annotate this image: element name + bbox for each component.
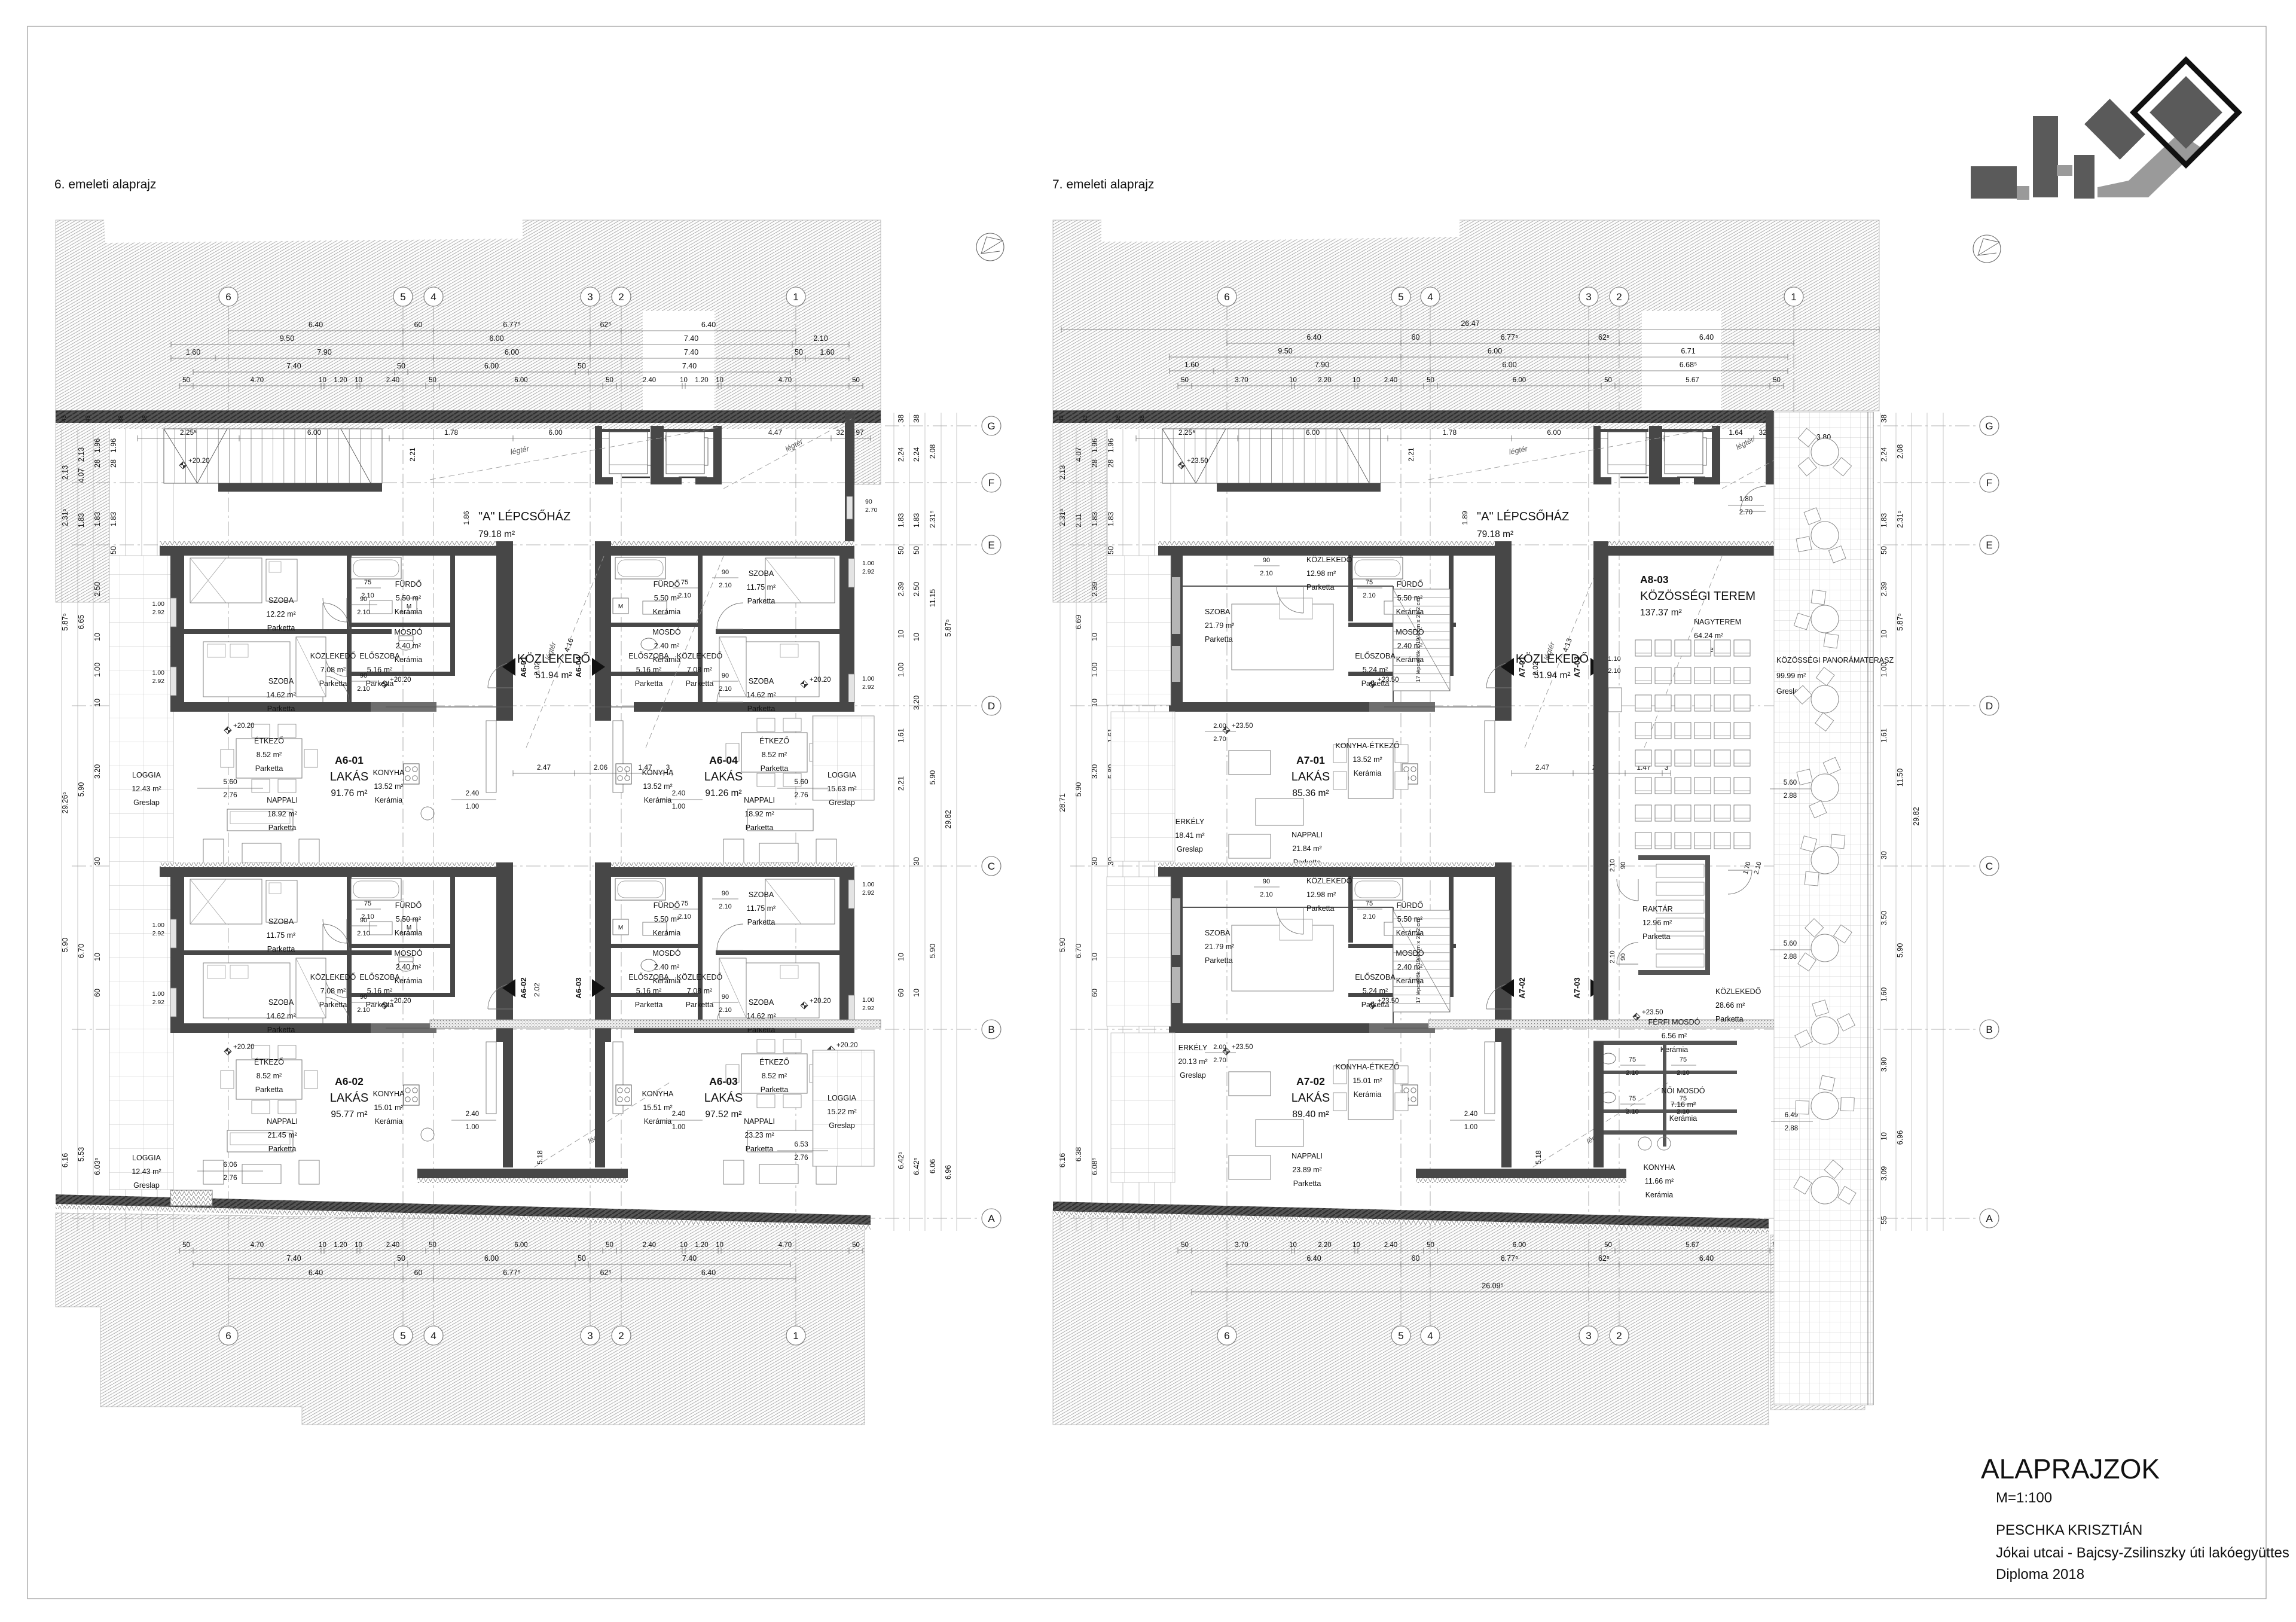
- svg-text:6.69: 6.69: [1074, 615, 1083, 629]
- svg-text:1.00: 1.00: [466, 803, 479, 810]
- svg-text:5.50 m²: 5.50 m²: [396, 915, 421, 923]
- svg-text:2.40: 2.40: [1384, 377, 1397, 384]
- svg-text:MOSDÓ: MOSDÓ: [1396, 627, 1424, 636]
- svg-text:50: 50: [1427, 377, 1434, 384]
- svg-text:6. emeleti alaprajz: 6. emeleti alaprajz: [54, 178, 156, 191]
- svg-text:+23.50: +23.50: [1232, 722, 1253, 730]
- svg-text:4.70: 4.70: [251, 1242, 264, 1249]
- svg-text:5.60: 5.60: [794, 778, 808, 786]
- svg-text:2.10: 2.10: [678, 592, 691, 599]
- svg-text:Diploma 2018: Diploma 2018: [1996, 1566, 2084, 1583]
- svg-text:1.61: 1.61: [897, 728, 905, 743]
- svg-text:2.40 m²: 2.40 m²: [654, 963, 679, 971]
- svg-text:43: 43: [1058, 415, 1065, 422]
- svg-text:28: 28: [1107, 459, 1115, 468]
- svg-text:11.50: 11.50: [1896, 769, 1904, 786]
- svg-text:6.77⁵: 6.77⁵: [1501, 1254, 1519, 1263]
- svg-text:1.00: 1.00: [862, 881, 875, 888]
- svg-text:90: 90: [1620, 862, 1627, 869]
- svg-text:50: 50: [1604, 377, 1612, 384]
- svg-text:KONYHA: KONYHA: [642, 1090, 674, 1098]
- svg-text:1.96: 1.96: [93, 438, 102, 453]
- svg-text:3: 3: [587, 291, 593, 303]
- svg-text:5.50 m²: 5.50 m²: [654, 594, 679, 602]
- svg-text:7.16 m²: 7.16 m²: [1671, 1100, 1696, 1109]
- svg-text:2.92: 2.92: [862, 1005, 875, 1012]
- svg-text:1.00: 1.00: [672, 803, 685, 810]
- svg-text:LOGGIA: LOGGIA: [132, 771, 161, 779]
- svg-text:5.24 m²: 5.24 m²: [1363, 666, 1388, 674]
- svg-text:7.40: 7.40: [684, 334, 698, 343]
- svg-text:Parketta: Parketta: [1205, 635, 1233, 644]
- svg-text:60: 60: [1412, 1254, 1420, 1263]
- svg-text:+23.50: +23.50: [1232, 1044, 1253, 1051]
- svg-text:2.50: 2.50: [912, 582, 921, 596]
- svg-text:LAKÁS: LAKÁS: [704, 1091, 743, 1105]
- svg-text:1.10: 1.10: [1608, 655, 1620, 663]
- svg-text:6.70: 6.70: [77, 944, 86, 958]
- svg-text:11.15: 11.15: [929, 589, 937, 607]
- svg-text:Kerámia: Kerámia: [375, 1117, 403, 1126]
- svg-text:15.01 m²: 15.01 m²: [1352, 1077, 1382, 1085]
- svg-text:50: 50: [912, 546, 921, 554]
- svg-text:75: 75: [1366, 579, 1373, 586]
- svg-text:7.40: 7.40: [684, 348, 698, 356]
- svg-text:2.10: 2.10: [678, 913, 691, 920]
- svg-text:ÉTKEZŐ: ÉTKEZŐ: [254, 1057, 284, 1066]
- svg-text:Kerámia: Kerámia: [1645, 1191, 1674, 1199]
- svg-text:FÜRDŐ: FÜRDŐ: [654, 580, 680, 589]
- svg-text:Kerámia: Kerámia: [1669, 1114, 1697, 1123]
- svg-text:A7-02: A7-02: [1518, 977, 1526, 998]
- svg-text:+23.50: +23.50: [1378, 998, 1399, 1005]
- svg-text:15.63 m²: 15.63 m²: [827, 785, 856, 793]
- svg-text:2.25⁵: 2.25⁵: [180, 428, 197, 437]
- svg-text:LOGGIA: LOGGIA: [132, 1154, 161, 1162]
- svg-text:Parketta: Parketta: [761, 764, 789, 773]
- svg-text:SZOBA: SZOBA: [268, 677, 294, 685]
- svg-text:Kerámia: Kerámia: [1396, 608, 1424, 616]
- svg-text:2.88: 2.88: [1785, 1125, 1798, 1132]
- svg-text:91.26 m²: 91.26 m²: [705, 788, 741, 798]
- svg-text:2.06: 2.06: [594, 763, 608, 772]
- svg-text:95.77 m²: 95.77 m²: [331, 1109, 367, 1120]
- svg-text:ÉTKEZŐ: ÉTKEZŐ: [759, 736, 789, 745]
- svg-text:90: 90: [722, 890, 729, 897]
- svg-text:8.52 m²: 8.52 m²: [762, 751, 787, 759]
- svg-text:2: 2: [1616, 1330, 1622, 1341]
- svg-text:4: 4: [430, 1330, 436, 1341]
- svg-text:2.10: 2.10: [719, 903, 731, 910]
- svg-text:2.39: 2.39: [897, 582, 905, 596]
- svg-text:+20.20: +20.20: [233, 722, 255, 730]
- svg-text:7.08 m²: 7.08 m²: [687, 987, 712, 995]
- svg-text:14.62 m²: 14.62 m²: [266, 1012, 295, 1020]
- svg-text:2.76: 2.76: [223, 791, 237, 799]
- svg-text:Jókai utcai - Bajcsy-Zsilinszk: Jókai utcai - Bajcsy-Zsilinszky úti lakó…: [1996, 1545, 2289, 1561]
- svg-text:2.40: 2.40: [643, 1242, 656, 1249]
- svg-text:6.00: 6.00: [1502, 361, 1516, 369]
- svg-text:1: 1: [1791, 291, 1796, 303]
- svg-text:75: 75: [1629, 1056, 1636, 1063]
- svg-text:Parketta: Parketta: [268, 824, 297, 832]
- svg-text:E: E: [1986, 539, 1992, 551]
- svg-text:2.21: 2.21: [1407, 447, 1415, 462]
- svg-text:Parketta: Parketta: [1205, 956, 1233, 965]
- svg-text:15.51 m²: 15.51 m²: [643, 1103, 672, 1112]
- svg-text:10: 10: [319, 377, 326, 384]
- svg-text:91.76 m²: 91.76 m²: [331, 788, 367, 798]
- svg-text:KÖZLEKEDŐ: KÖZLEKEDŐ: [310, 972, 356, 981]
- svg-text:2.92: 2.92: [152, 930, 165, 937]
- svg-text:+23.50: +23.50: [1642, 1009, 1663, 1016]
- svg-text:2.76: 2.76: [223, 1173, 237, 1182]
- svg-text:18.92 m²: 18.92 m²: [744, 810, 774, 818]
- svg-text:50: 50: [109, 546, 118, 554]
- svg-text:2.40: 2.40: [672, 1111, 685, 1118]
- svg-text:+20.20: +20.20: [390, 676, 411, 684]
- svg-text:50: 50: [606, 1242, 613, 1249]
- svg-text:90: 90: [1620, 953, 1627, 961]
- svg-text:Greslap: Greslap: [1180, 1071, 1206, 1080]
- svg-text:2.70: 2.70: [1213, 1057, 1226, 1064]
- svg-text:KÖZÖSSÉGI TEREM: KÖZÖSSÉGI TEREM: [1640, 589, 1755, 603]
- svg-text:A6-01: A6-01: [519, 656, 528, 677]
- svg-text:SZOBA: SZOBA: [749, 998, 774, 1007]
- svg-text:2.10: 2.10: [1609, 950, 1616, 963]
- svg-text:ELŐSZOBA: ELŐSZOBA: [1355, 972, 1396, 981]
- svg-text:6.40: 6.40: [1306, 333, 1321, 342]
- svg-text:5.67: 5.67: [1686, 1242, 1699, 1249]
- svg-text:75: 75: [1366, 900, 1373, 907]
- svg-text:Parketta: Parketta: [635, 679, 663, 688]
- svg-text:12.43 m²: 12.43 m²: [132, 1167, 161, 1176]
- svg-text:"A" LÉPCSŐHÁZ: "A" LÉPCSŐHÁZ: [1477, 510, 1569, 523]
- svg-text:F: F: [1986, 477, 1992, 489]
- svg-text:43: 43: [85, 415, 91, 422]
- svg-text:KONYHA: KONYHA: [373, 1090, 405, 1098]
- svg-text:90: 90: [1263, 557, 1270, 564]
- svg-text:NŐI MOSDÓ: NŐI MOSDÓ: [1662, 1086, 1705, 1095]
- svg-text:KÖZLEKEDŐ: KÖZLEKEDŐ: [1715, 987, 1761, 996]
- svg-text:2.10: 2.10: [1363, 913, 1375, 920]
- svg-text:50: 50: [852, 377, 860, 384]
- svg-text:Kerámia: Kerámia: [644, 796, 672, 804]
- svg-text:38: 38: [142, 415, 148, 422]
- svg-text:2.40 m²: 2.40 m²: [396, 963, 421, 971]
- svg-text:12.98 m²: 12.98 m²: [1306, 569, 1336, 578]
- svg-text:Parketta: Parketta: [268, 1145, 297, 1153]
- svg-text:Kerámia: Kerámia: [1354, 769, 1382, 778]
- svg-text:10: 10: [1289, 377, 1297, 384]
- svg-text:2.92: 2.92: [152, 609, 165, 616]
- svg-text:+20.20: +20.20: [836, 1042, 858, 1049]
- svg-text:5.90: 5.90: [77, 782, 86, 797]
- svg-text:3: 3: [587, 1330, 593, 1341]
- svg-text:6.00: 6.00: [505, 348, 519, 356]
- svg-text:6.00: 6.00: [1547, 428, 1561, 437]
- svg-text:1.00: 1.00: [1880, 663, 1888, 677]
- svg-text:1.86: 1.86: [462, 511, 471, 525]
- svg-text:10: 10: [1289, 1242, 1297, 1249]
- svg-text:75: 75: [364, 579, 371, 586]
- svg-text:ERKÉLY: ERKÉLY: [1178, 1043, 1208, 1052]
- svg-text:1.83: 1.83: [109, 512, 118, 526]
- svg-text:1.00: 1.00: [1464, 1124, 1477, 1131]
- svg-text:Parketta: Parketta: [1306, 583, 1335, 592]
- svg-text:2.88: 2.88: [1784, 792, 1797, 800]
- svg-text:6: 6: [225, 291, 231, 303]
- svg-text:7.90: 7.90: [1315, 361, 1329, 369]
- svg-text:2.10: 2.10: [361, 913, 374, 920]
- svg-text:2: 2: [618, 1330, 624, 1341]
- svg-text:FÜRDŐ: FÜRDŐ: [654, 901, 680, 910]
- svg-text:6.00: 6.00: [1488, 347, 1502, 355]
- svg-text:4.07: 4.07: [1074, 447, 1083, 462]
- svg-text:1.78: 1.78: [1443, 428, 1457, 437]
- svg-text:6.03⁵: 6.03⁵: [93, 1157, 102, 1175]
- svg-text:5.16 m²: 5.16 m²: [636, 666, 661, 674]
- svg-text:1.20: 1.20: [695, 1242, 708, 1249]
- svg-text:Kerámia: Kerámia: [1354, 1090, 1382, 1099]
- svg-text:10: 10: [355, 1242, 362, 1249]
- svg-text:Kerámia: Kerámia: [1396, 977, 1424, 985]
- svg-text:29.26⁵: 29.26⁵: [61, 792, 69, 813]
- svg-text:M: M: [618, 603, 623, 610]
- svg-text:6.00: 6.00: [1513, 1242, 1526, 1249]
- svg-text:137.37 m²: 137.37 m²: [1640, 608, 1682, 618]
- svg-text:+23.50: +23.50: [1378, 676, 1399, 684]
- svg-text:7.40: 7.40: [682, 362, 697, 370]
- svg-text:LAKÁS: LAKÁS: [1291, 1091, 1330, 1105]
- svg-text:1.00: 1.00: [862, 560, 875, 567]
- svg-text:2.40: 2.40: [1464, 1111, 1477, 1118]
- svg-text:38: 38: [1139, 415, 1146, 422]
- svg-text:2.50: 2.50: [93, 582, 102, 596]
- svg-text:2.39: 2.39: [1880, 582, 1888, 596]
- svg-text:2.24: 2.24: [897, 447, 905, 462]
- svg-text:4: 4: [1427, 291, 1433, 303]
- svg-text:89.40 m²: 89.40 m²: [1292, 1109, 1329, 1120]
- svg-text:50: 50: [397, 1254, 405, 1263]
- svg-text:12.43 m²: 12.43 m²: [132, 785, 161, 793]
- svg-text:11.75 m²: 11.75 m²: [267, 931, 295, 940]
- svg-text:Parketta: Parketta: [255, 1086, 283, 1094]
- svg-text:2.10: 2.10: [813, 334, 828, 343]
- svg-text:6.42⁵: 6.42⁵: [897, 1151, 905, 1169]
- svg-text:10: 10: [1880, 1132, 1888, 1141]
- svg-text:A7-03: A7-03: [1573, 977, 1581, 998]
- svg-text:2.10: 2.10: [1609, 859, 1616, 871]
- svg-text:A8-03: A8-03: [1640, 574, 1669, 586]
- svg-text:NAPPALI: NAPPALI: [744, 796, 775, 804]
- svg-text:50: 50: [429, 377, 436, 384]
- svg-text:9.50: 9.50: [280, 334, 294, 343]
- svg-text:A: A: [1986, 1213, 1993, 1224]
- svg-text:28.71: 28.71: [1058, 793, 1067, 812]
- svg-text:2.00: 2.00: [1213, 1044, 1226, 1051]
- svg-text:50: 50: [1107, 546, 1115, 554]
- svg-text:RAKTÁR: RAKTÁR: [1642, 904, 1673, 913]
- svg-text:85.36 m²: 85.36 m²: [1292, 788, 1329, 798]
- svg-text:10: 10: [1352, 1242, 1360, 1249]
- svg-text:50: 50: [182, 377, 190, 384]
- svg-text:Greslap: Greslap: [829, 1121, 855, 1130]
- svg-text:5.50 m²: 5.50 m²: [1397, 915, 1422, 923]
- svg-text:79.18 m²: 79.18 m²: [1477, 529, 1513, 539]
- svg-text:28: 28: [93, 459, 102, 468]
- svg-text:99.99 m²: 99.99 m²: [1776, 672, 1806, 680]
- svg-text:15.01 m²: 15.01 m²: [374, 1103, 403, 1112]
- svg-text:6.40: 6.40: [1699, 1254, 1714, 1263]
- svg-text:2.21: 2.21: [408, 447, 417, 462]
- svg-text:MOSDÓ: MOSDÓ: [1396, 949, 1424, 958]
- svg-text:2.10: 2.10: [1626, 1069, 1638, 1077]
- svg-text:97.52 m²: 97.52 m²: [705, 1109, 741, 1120]
- svg-text:4: 4: [430, 291, 436, 303]
- svg-text:ELŐSZOBA: ELŐSZOBA: [628, 972, 669, 981]
- svg-text:5: 5: [400, 1330, 405, 1341]
- svg-text:5.18: 5.18: [536, 1150, 544, 1164]
- svg-text:5: 5: [400, 291, 405, 303]
- svg-text:6.71: 6.71: [1681, 347, 1695, 355]
- svg-text:Parketta: Parketta: [635, 1001, 663, 1009]
- svg-text:+20.20: +20.20: [188, 458, 210, 465]
- svg-text:1.60: 1.60: [186, 348, 200, 356]
- svg-text:2.40: 2.40: [386, 377, 399, 384]
- svg-text:2.92: 2.92: [862, 889, 875, 897]
- svg-text:50: 50: [1773, 377, 1781, 384]
- svg-text:97: 97: [856, 428, 864, 437]
- svg-text:Parketta: Parketta: [319, 1001, 347, 1009]
- svg-text:5.87⁵: 5.87⁵: [1896, 613, 1904, 631]
- svg-text:6.38: 6.38: [1074, 1147, 1083, 1161]
- svg-text:6.00: 6.00: [307, 428, 322, 437]
- svg-text:6.00: 6.00: [1513, 377, 1526, 384]
- svg-text:6.00: 6.00: [489, 334, 503, 343]
- svg-text:D: D: [988, 700, 995, 712]
- svg-text:+20.20: +20.20: [390, 998, 411, 1005]
- svg-text:6.16: 6.16: [1058, 1153, 1067, 1167]
- svg-text:4.07: 4.07: [77, 468, 86, 483]
- svg-text:1.00: 1.00: [672, 1124, 685, 1131]
- svg-text:14.62 m²: 14.62 m²: [746, 691, 775, 699]
- svg-text:5.87⁵: 5.87⁵: [944, 619, 952, 637]
- svg-text:2.08: 2.08: [1896, 444, 1904, 459]
- svg-text:NAPPALI: NAPPALI: [267, 1117, 298, 1126]
- svg-text:10: 10: [355, 377, 362, 384]
- svg-text:Kerámia: Kerámia: [1396, 929, 1424, 937]
- svg-text:2.40 m²: 2.40 m²: [1397, 963, 1422, 971]
- svg-text:2.88: 2.88: [1784, 953, 1797, 961]
- svg-text:3: 3: [666, 763, 670, 772]
- svg-text:6.68⁵: 6.68⁵: [1680, 361, 1697, 369]
- svg-text:5.50 m²: 5.50 m²: [1397, 594, 1422, 602]
- svg-text:2.70: 2.70: [865, 507, 878, 514]
- svg-text:11.75 m²: 11.75 m²: [747, 583, 775, 592]
- svg-text:32: 32: [836, 428, 844, 437]
- svg-text:2.11: 2.11: [1074, 513, 1083, 527]
- svg-text:A6-01: A6-01: [335, 754, 364, 766]
- svg-text:SZOBA: SZOBA: [749, 891, 774, 899]
- svg-text:1.83: 1.83: [1880, 513, 1888, 528]
- svg-text:1.00: 1.00: [152, 669, 165, 676]
- svg-text:2.76: 2.76: [794, 1153, 808, 1161]
- svg-text:6.77⁵: 6.77⁵: [503, 1269, 521, 1277]
- svg-text:NAPPALI: NAPPALI: [267, 796, 298, 804]
- svg-text:6.00: 6.00: [514, 1242, 527, 1249]
- svg-text:50: 50: [1427, 1242, 1434, 1249]
- svg-text:2.10: 2.10: [719, 1007, 731, 1014]
- svg-text:1.78: 1.78: [444, 428, 459, 437]
- svg-text:ERKÉLY: ERKÉLY: [1176, 817, 1205, 826]
- svg-text:C: C: [988, 861, 995, 872]
- svg-text:Greslap: Greslap: [1177, 845, 1203, 853]
- svg-text:38: 38: [1115, 415, 1122, 422]
- svg-text:12.98 m²: 12.98 m²: [1306, 891, 1336, 899]
- svg-text:1.83: 1.83: [93, 512, 102, 526]
- svg-text:Parketta: Parketta: [1642, 932, 1671, 941]
- svg-text:4.47: 4.47: [768, 428, 783, 437]
- svg-text:90: 90: [722, 993, 729, 1001]
- svg-text:6.00: 6.00: [1306, 428, 1320, 437]
- svg-text:6.40: 6.40: [701, 1269, 716, 1277]
- svg-text:2.40: 2.40: [1384, 1242, 1397, 1249]
- svg-text:7.40: 7.40: [682, 1254, 697, 1263]
- svg-text:5.90: 5.90: [1896, 943, 1904, 958]
- svg-text:FÜRDŐ: FÜRDŐ: [395, 901, 422, 910]
- svg-text:2.40 m²: 2.40 m²: [396, 642, 421, 650]
- svg-text:2.10: 2.10: [1626, 1108, 1638, 1115]
- svg-text:LAKÁS: LAKÁS: [704, 770, 743, 783]
- svg-text:2.10: 2.10: [1260, 570, 1272, 577]
- svg-text:KONYHA-ÉTKEZŐ: KONYHA-ÉTKEZŐ: [1336, 741, 1400, 750]
- svg-text:10: 10: [897, 630, 905, 638]
- svg-text:2.31⁵: 2.31⁵: [1058, 508, 1067, 526]
- svg-text:38: 38: [897, 414, 905, 423]
- svg-text:38: 38: [118, 415, 124, 422]
- svg-text:1.20: 1.20: [334, 1242, 347, 1249]
- svg-text:A7-01: A7-01: [1518, 656, 1526, 677]
- svg-text:12.22 m²: 12.22 m²: [266, 610, 295, 618]
- svg-text:10: 10: [93, 699, 102, 707]
- svg-text:3.70: 3.70: [1235, 1242, 1248, 1249]
- svg-text:LAKÁS: LAKÁS: [1291, 770, 1330, 783]
- svg-text:5.50 m²: 5.50 m²: [654, 915, 679, 923]
- svg-text:FÉRFI MOSDÓ: FÉRFI MOSDÓ: [1648, 1017, 1700, 1026]
- svg-text:MOSDÓ: MOSDÓ: [394, 627, 423, 636]
- svg-text:10: 10: [680, 1242, 688, 1249]
- svg-text:Kerámia: Kerámia: [375, 796, 403, 804]
- svg-text:ÉTKEZŐ: ÉTKEZŐ: [254, 736, 284, 745]
- svg-text:12.96 m²: 12.96 m²: [1642, 919, 1672, 927]
- svg-text:50: 50: [578, 1254, 586, 1263]
- svg-text:5.60: 5.60: [1784, 940, 1797, 947]
- svg-text:50: 50: [897, 546, 905, 554]
- svg-text:6.56 m²: 6.56 m²: [1662, 1032, 1687, 1040]
- svg-text:50: 50: [429, 1242, 436, 1249]
- svg-text:5.50 m²: 5.50 m²: [396, 594, 421, 602]
- svg-text:3.70: 3.70: [1235, 377, 1248, 384]
- svg-text:Parketta: Parketta: [267, 1026, 295, 1034]
- svg-text:50: 50: [1880, 546, 1888, 554]
- svg-text:5.90: 5.90: [1058, 938, 1067, 952]
- svg-text:3: 3: [1586, 291, 1591, 303]
- svg-text:Parketta: Parketta: [267, 624, 295, 632]
- svg-text:10: 10: [1352, 377, 1360, 384]
- svg-text:Parketta: Parketta: [746, 824, 774, 832]
- svg-text:7. emeleti alaprajz: 7. emeleti alaprajz: [1052, 178, 1154, 191]
